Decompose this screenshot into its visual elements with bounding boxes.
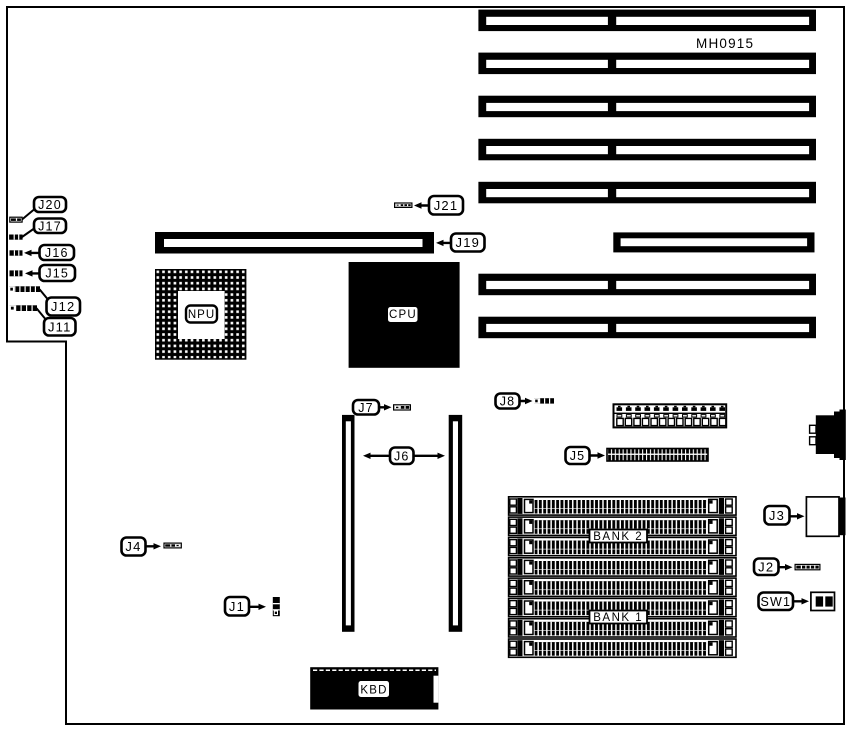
- svg-text:J7: J7: [358, 401, 374, 415]
- svg-text:J19: J19: [456, 235, 481, 250]
- svg-text:J12: J12: [51, 299, 76, 314]
- svg-text:J21: J21: [434, 198, 459, 213]
- svg-text:J1: J1: [229, 599, 245, 614]
- svg-text:J20: J20: [38, 198, 62, 212]
- svg-text:NPU: NPU: [188, 309, 215, 321]
- svg-text:J6: J6: [394, 449, 410, 463]
- svg-text:J5: J5: [570, 449, 586, 463]
- svg-text:KBD: KBD: [360, 684, 387, 696]
- svg-text:J4: J4: [125, 539, 141, 554]
- svg-text:J16: J16: [45, 246, 69, 260]
- svg-text:J11: J11: [48, 319, 72, 334]
- svg-text:J2: J2: [758, 559, 774, 574]
- svg-text:J3: J3: [769, 508, 785, 523]
- svg-text:BANK 2: BANK 2: [593, 531, 643, 543]
- svg-text:CPU: CPU: [389, 309, 417, 321]
- svg-text:SW1: SW1: [760, 595, 791, 609]
- svg-text:J17: J17: [38, 219, 62, 233]
- svg-text:J8: J8: [500, 395, 516, 409]
- svg-text:J15: J15: [45, 267, 69, 281]
- svg-text:BANK 1: BANK 1: [593, 612, 643, 624]
- svg-text:MH0915: MH0915: [696, 36, 754, 51]
